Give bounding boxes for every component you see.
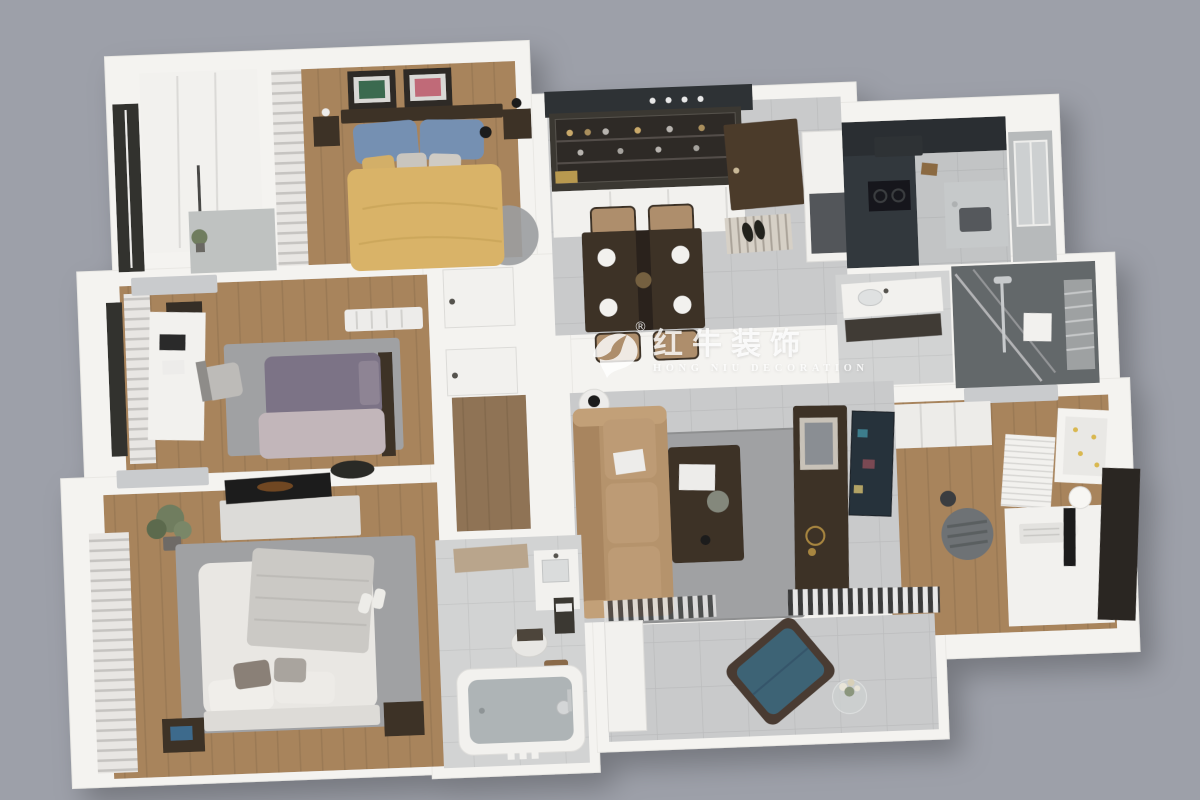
dining-chair [595,332,640,362]
radiator-rib [386,310,387,328]
blue-book [170,726,193,741]
desk-lamp [1069,486,1092,509]
gold-decor [555,171,577,184]
shower-head [994,276,1012,284]
nightstand [503,108,532,139]
floorplan-svg [0,0,1200,800]
cutting-board [921,162,938,176]
nightstand [313,116,340,147]
toilet-tank [517,628,543,641]
room-dining [544,81,850,364]
plank-texture [452,395,531,532]
pin-board-inner [1063,416,1108,476]
room-bedroom-yellow [271,60,540,274]
desk [148,312,206,441]
accent-pillow [233,659,272,690]
open-book [613,449,646,475]
nightstand [383,701,424,737]
wall-detail [507,748,514,760]
closet-doors [886,401,992,449]
floorplan-render: ® 红牛装饰 HONG NIU DECORATION [0,0,1200,800]
book-spines [1001,434,1056,509]
art-inner [805,422,834,464]
radiator-rib [371,311,372,329]
seat-cushion [605,482,659,544]
room-bathroom-shower [835,261,1099,393]
air-conditioner [131,275,218,296]
blush-blanket [258,408,386,459]
radiator-rib [401,310,402,328]
coffee-table [668,445,744,564]
room-balcony-lounge [604,608,938,742]
pillow [358,360,380,405]
towel [556,603,572,612]
blue-pillow [420,119,484,159]
room-master-bedroom [86,457,448,779]
room-living [570,376,941,626]
wall-detail [519,749,526,759]
magazine [679,464,715,491]
range-hood [874,135,923,157]
wall-detail [531,747,538,759]
air-conditioner [116,467,209,489]
dining-chair [653,330,698,360]
wardrobe [1098,468,1141,621]
yellow-duvet [347,164,505,272]
room-entry [721,116,857,265]
interior-door [446,347,518,396]
room-bathroom-tub [435,535,590,768]
striped-textile [788,586,941,615]
interior-door [443,267,515,328]
counter [842,116,1007,156]
art-color-patch [862,459,874,468]
papers [162,360,185,375]
green-artwork [359,80,386,99]
sink [959,207,992,232]
side-cabinet [605,621,647,732]
faucet-pipe [567,689,572,711]
front-door [723,118,804,210]
basin [542,559,569,582]
laptop [159,334,185,350]
room-bedroom-purple [105,267,434,477]
plant-pot [196,243,205,252]
pink-artwork [415,78,442,97]
radiator-rib [356,311,357,329]
art-color-patch [854,485,863,493]
corner-shelf [1023,313,1051,341]
monitor [1064,508,1076,566]
accent-pillow [274,658,307,683]
dark-shelf [554,597,575,634]
room-kitchen [842,114,1057,268]
keyboard [1019,522,1064,544]
basin [858,289,883,306]
cabinet-glass [555,113,737,184]
art-color-patch [857,429,867,437]
